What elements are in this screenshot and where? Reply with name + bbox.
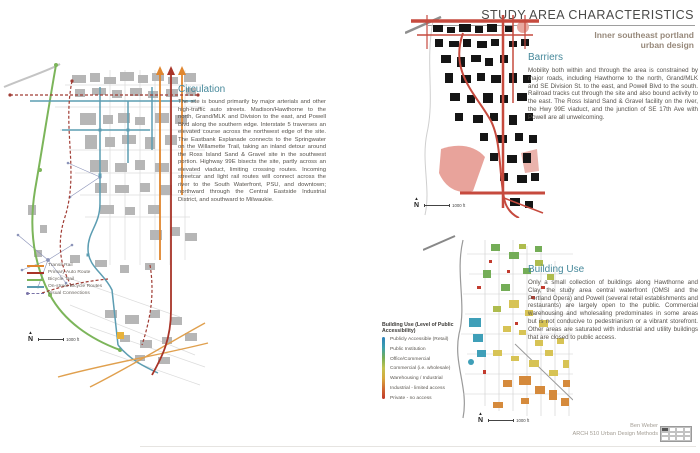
bicycle-trail-swatch: [27, 279, 44, 281]
north-arrow-icon: ▲ N: [478, 412, 483, 424]
transit-rail-swatch: [27, 265, 44, 267]
grid-logo: [660, 426, 692, 442]
legend-item: Commercial (i.e. wholesale): [390, 366, 450, 371]
legend-item: Publicly Accessible (Retail): [390, 337, 450, 342]
poster-page: STUDY AREA CHARACTERISTICS Inner southea…: [0, 0, 700, 453]
legend-item: Office/Commercial: [390, 357, 450, 362]
credits: Ben Weber ARCH 510 Urban Design Methods: [572, 423, 658, 438]
building-legend-title: Building Use (Level of Public Accessibil…: [382, 322, 486, 334]
building-legend-gradient: [382, 337, 385, 399]
ross-island-area: [439, 146, 485, 192]
barriers-body: Mobility both within and through the are…: [528, 67, 698, 122]
map-north-scale: ▲ N 1000 ft: [478, 412, 529, 424]
legend-item: Warehousing / Industrial: [390, 376, 450, 381]
legend-item: On-street Bicycle Routes: [27, 283, 102, 290]
legend-item: Visual Connections: [27, 290, 102, 297]
scale-bar: 1000 ft: [488, 418, 529, 424]
author-name: Ben Weber: [572, 423, 658, 431]
bicycle-route-swatch: [27, 286, 44, 288]
primary-auto-route-line: [152, 66, 175, 375]
scale-bar: 1000 ft: [38, 337, 79, 343]
scale-line: [38, 338, 64, 341]
scale-line: [488, 419, 514, 422]
north-arrow-icon: ▲ N: [28, 331, 33, 343]
building-use-legend: Building Use (Level of Public Accessibil…: [382, 322, 486, 401]
legend-item: Primary Auto Route: [27, 269, 102, 276]
map-north-scale: ▲ N 1000 ft: [28, 331, 79, 343]
scale-bar: 1000 ft: [424, 203, 465, 209]
legend-item: Public Institution: [390, 347, 450, 352]
primary-auto-swatch: [27, 272, 44, 274]
map-north-scale: ▲ N 1000 ft: [414, 197, 465, 209]
legend-item: Bicycle Trail: [27, 276, 102, 283]
barriers-map: [405, 3, 545, 218]
course-name: ARCH 510 Urban Design Methods: [572, 431, 658, 439]
subtitle-line-1: Inner southeast portland: [594, 30, 694, 40]
scale-line: [424, 204, 450, 207]
north-arrow-icon: ▲ N: [414, 197, 419, 209]
legend-item: Industrial - limited access: [390, 386, 450, 391]
legend-item: Private - no access: [390, 396, 450, 401]
visual-connections-swatch: [27, 293, 44, 294]
building-use-section: Building Use Only a small collection of …: [528, 264, 698, 341]
subtitle-line-2: urban design: [594, 40, 694, 50]
building-use-body: Only a small collection of buildings alo…: [528, 279, 698, 341]
circulation-heading: Circulation: [178, 84, 326, 95]
barriers-section: Barriers Mobility both within and throug…: [528, 52, 698, 122]
footer-divider: [140, 446, 696, 447]
page-subtitle: Inner southeast portland urban design: [594, 30, 694, 50]
barriers-heading: Barriers: [528, 52, 698, 63]
building-use-heading: Building Use: [528, 264, 698, 275]
legend-item: Transit Rail: [27, 262, 102, 269]
circulation-section: Circulation The site is bound primarily …: [178, 84, 326, 204]
circulation-legend: Transit Rail Primary Auto Route Bicycle …: [27, 262, 102, 297]
circulation-body: The site is bound primarily by major art…: [178, 99, 326, 204]
